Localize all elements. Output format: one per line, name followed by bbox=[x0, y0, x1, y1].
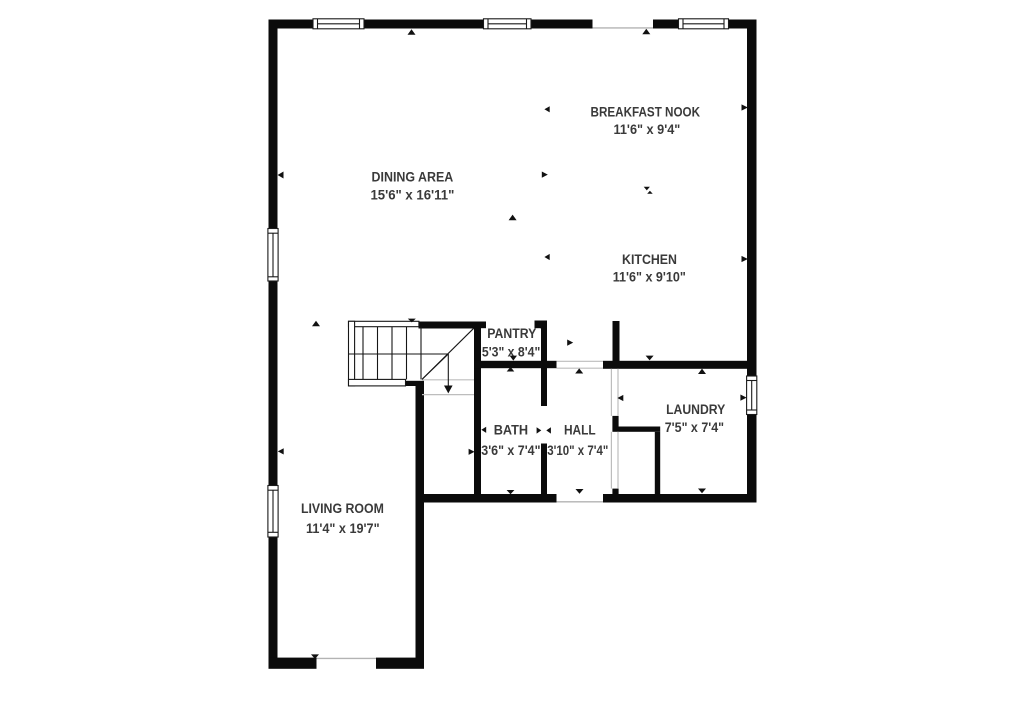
svg-text:BATH: BATH bbox=[494, 423, 528, 439]
svg-text:5'3" x 8'4": 5'3" x 8'4" bbox=[482, 345, 540, 361]
svg-text:11'6" x 9'10": 11'6" x 9'10" bbox=[613, 270, 686, 286]
svg-text:LIVING ROOM: LIVING ROOM bbox=[301, 501, 384, 517]
svg-text:KITCHEN: KITCHEN bbox=[622, 252, 677, 268]
svg-text:3'6" x 7'4": 3'6" x 7'4" bbox=[481, 443, 540, 459]
svg-text:11'6" x 9'4": 11'6" x 9'4" bbox=[614, 122, 681, 138]
svg-text:HALL: HALL bbox=[564, 423, 596, 439]
svg-text:3'10" x 7'4": 3'10" x 7'4" bbox=[547, 443, 608, 459]
svg-text:DINING AREA: DINING AREA bbox=[372, 170, 454, 186]
svg-text:11'4" x 19'7": 11'4" x 19'7" bbox=[306, 521, 380, 537]
svg-text:15'6" x 16'11": 15'6" x 16'11" bbox=[370, 187, 454, 203]
svg-text:PANTRY: PANTRY bbox=[487, 326, 536, 342]
svg-text:LAUNDRY: LAUNDRY bbox=[666, 402, 726, 418]
svg-text:BREAKFAST NOOK: BREAKFAST NOOK bbox=[591, 104, 701, 120]
svg-text:7'5" x 7'4": 7'5" x 7'4" bbox=[665, 420, 724, 436]
